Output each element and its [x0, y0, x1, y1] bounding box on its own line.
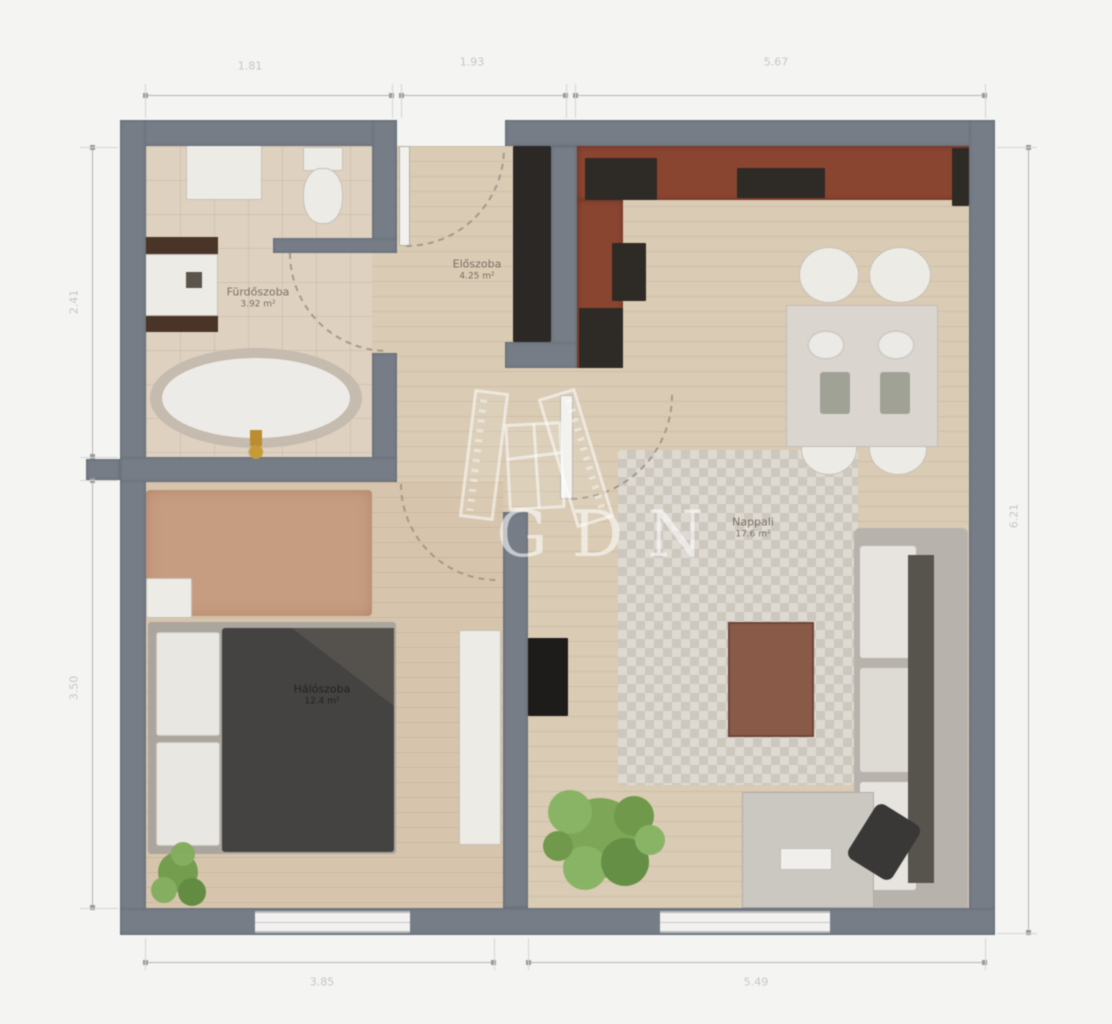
- bathroom-label: Fürdőszoba 3.92 m²: [227, 286, 290, 311]
- entry-door-leaf: [399, 146, 410, 246]
- wall-stub-exterior: [86, 459, 120, 480]
- witness-line: [494, 938, 495, 970]
- table-decor: [880, 372, 910, 414]
- table-decor: [820, 372, 850, 414]
- dim-left-1: 2.41: [68, 290, 81, 315]
- witness-line: [566, 84, 567, 118]
- witness-line: [145, 84, 146, 118]
- bedroom-area: 12.4 m²: [294, 696, 351, 707]
- witness-line: [80, 457, 118, 458]
- bathtub-basin: [162, 358, 350, 438]
- washer-shelf-bottom: [142, 316, 218, 332]
- living-window: [660, 911, 830, 933]
- witness-line: [985, 938, 986, 970]
- wall-hall-kitchen: [551, 146, 577, 368]
- plate: [807, 330, 845, 360]
- plate: [877, 330, 915, 360]
- dim-line-left-1: [92, 147, 93, 457]
- washer-shelf-top: [142, 237, 218, 254]
- dim-left-2: 3.50: [68, 676, 81, 701]
- dim-right-1: 6.21: [1008, 504, 1021, 529]
- dim-top-2: 1.93: [460, 56, 485, 69]
- pillow: [156, 742, 220, 846]
- wall-left: [120, 120, 146, 935]
- washing-machine: [142, 254, 218, 316]
- witness-line: [80, 908, 118, 909]
- dim-bottom-1: 3.85: [310, 976, 335, 989]
- dining-table: [786, 305, 938, 447]
- dim-line-top-3: [575, 95, 985, 96]
- witness-line: [575, 84, 576, 118]
- watermark-text: GDN: [448, 498, 752, 572]
- dim-line-top-1: [145, 95, 392, 96]
- witness-line: [401, 84, 402, 118]
- bathroom-sink: [186, 144, 262, 200]
- toilet-bowl: [303, 168, 343, 224]
- dining-chair: [869, 247, 931, 303]
- floorplan: Fürdőszoba 3.92 m² Előszoba 4.25 m² Napp…: [0, 0, 1112, 1024]
- witness-line: [528, 938, 529, 970]
- tv: [528, 638, 568, 716]
- hall-cabinet: [513, 146, 551, 342]
- wall-right: [969, 120, 995, 935]
- bedroom-name: Hálószoba: [294, 683, 351, 697]
- kitchen-end-cabinet: [952, 148, 969, 206]
- dim-line-bottom-2: [528, 962, 985, 963]
- kitchen-fridge: [585, 158, 657, 200]
- hall-area: 4.25 m²: [453, 271, 502, 282]
- bedroom-label: Hálószoba 12.4 m²: [294, 683, 351, 708]
- dining-chair: [799, 247, 859, 303]
- witness-line: [392, 84, 393, 118]
- wall-top-left: [120, 120, 397, 146]
- wall-bathroom-upper: [372, 120, 397, 253]
- wall-wc-nook: [273, 238, 397, 253]
- pillow: [156, 632, 220, 736]
- dim-line-left-2: [92, 480, 93, 908]
- kitchen-oven: [579, 308, 623, 368]
- witness-line: [80, 480, 118, 481]
- witness-line: [985, 84, 986, 118]
- witness-line: [145, 938, 146, 970]
- dishwasher: [612, 243, 646, 301]
- hall-name: Előszoba: [453, 258, 502, 272]
- witness-line: [997, 933, 1037, 934]
- dim-line-top-2: [401, 95, 566, 96]
- washer-drum: [186, 272, 202, 288]
- dim-top-1: 1.81: [238, 60, 263, 73]
- witness-line: [997, 147, 1037, 148]
- wall-bottom: [120, 908, 995, 935]
- wall-top-right: [505, 120, 995, 146]
- laptop: [780, 848, 832, 870]
- witness-line: [80, 147, 118, 148]
- bathroom-name: Fürdőszoba: [227, 286, 290, 300]
- living-door-leaf: [560, 395, 573, 499]
- bathroom-area: 3.92 m²: [227, 299, 290, 310]
- bedroom-window: [255, 911, 410, 933]
- floorplan-canvas: Fürdőszoba 3.92 m² Előszoba 4.25 m² Napp…: [0, 0, 1112, 1024]
- wall-hall-cap: [505, 342, 577, 368]
- wall-bath-bedroom-divider: [120, 457, 397, 482]
- hall-label: Előszoba 4.25 m²: [453, 258, 502, 283]
- nightstand: [146, 578, 192, 618]
- cooktop: [737, 168, 825, 198]
- dim-line-bottom-1: [145, 962, 494, 963]
- coffee-table: [728, 622, 814, 737]
- dim-line-right: [1028, 147, 1029, 933]
- dim-bottom-2: 5.49: [744, 976, 769, 989]
- dim-top-3: 5.67: [764, 56, 789, 69]
- bedroom-wardrobe: [459, 630, 501, 845]
